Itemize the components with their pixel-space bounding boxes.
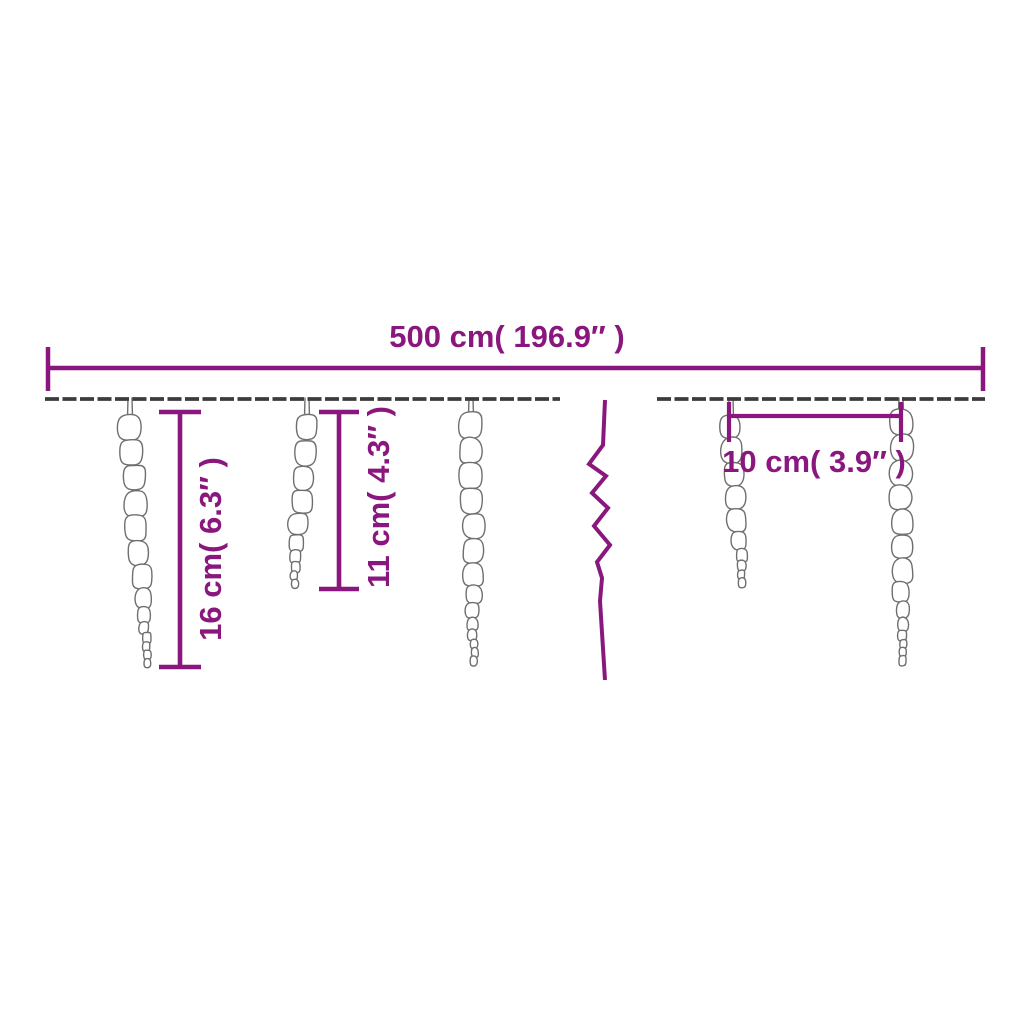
diagram-canvas (0, 0, 1024, 1024)
long-icicle-height-dimension-label: 16 cm( 6.3″ ) (193, 457, 229, 641)
icicle-4 (720, 398, 748, 588)
icicle-spacing-dimension-line (729, 402, 901, 442)
break-mark-zigzag (589, 400, 610, 680)
short-icicle-dimension-line (319, 412, 359, 589)
total-length-dimension-label: 500 cm( 196.9″ ) (389, 319, 624, 355)
icicle-1 (117, 398, 152, 668)
icicle-spacing-dimension-label: 10 cm( 3.9″ ) (722, 444, 906, 480)
short-icicle-height-dimension-label: 11 cm( 4.3″ ) (361, 406, 397, 588)
icicle-2 (288, 398, 317, 588)
icicle-3 (459, 398, 485, 666)
product-dimension-diagram: 500 cm( 196.9″ ) 16 cm( 6.3″ ) 11 cm( 4.… (0, 0, 1024, 1024)
